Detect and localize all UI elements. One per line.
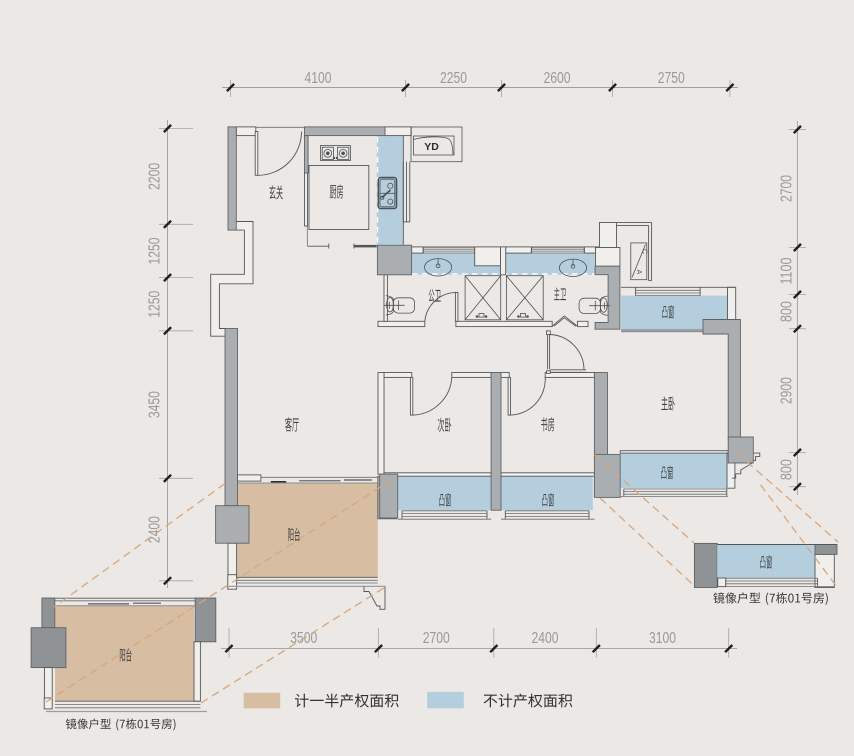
svg-text:2700: 2700: [423, 630, 450, 647]
svg-text:2400: 2400: [532, 630, 559, 647]
svg-text:2900: 2900: [779, 377, 796, 404]
svg-text:2200: 2200: [147, 163, 164, 190]
svg-text:1250: 1250: [147, 237, 164, 264]
svg-text:1250: 1250: [147, 290, 164, 317]
svg-text:2600: 2600: [544, 70, 571, 87]
svg-text:4100: 4100: [305, 70, 332, 87]
svg-text:2750: 2750: [658, 70, 685, 87]
svg-text:800: 800: [779, 459, 796, 480]
svg-text:2700: 2700: [779, 175, 796, 202]
svg-text:C: C: [641, 249, 648, 254]
svg-text:2250: 2250: [440, 70, 467, 87]
svg-text:YD: YD: [424, 141, 439, 153]
svg-text:3100: 3100: [649, 630, 676, 647]
svg-text:A: A: [635, 270, 642, 275]
svg-text:1100: 1100: [779, 257, 796, 284]
svg-text:3450: 3450: [147, 391, 164, 418]
svg-text:800: 800: [779, 301, 796, 322]
